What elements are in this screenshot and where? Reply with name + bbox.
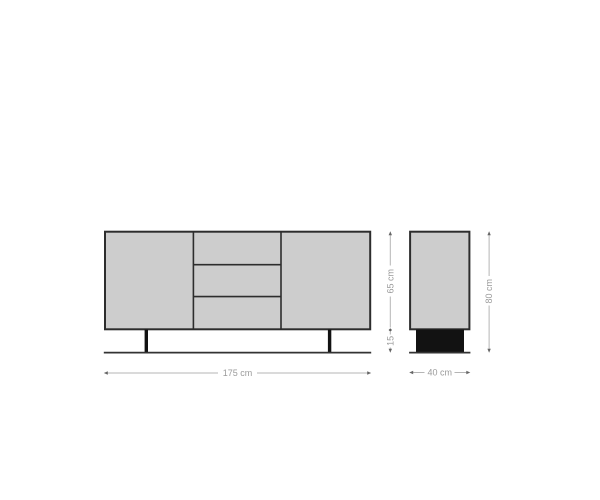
svg-text:175 cm: 175 cm [223,368,253,378]
svg-text:80 cm: 80 cm [484,279,494,304]
svg-text:15: 15 [385,336,395,346]
svg-text:65 cm: 65 cm [385,269,395,294]
svg-text:40 cm: 40 cm [427,368,452,378]
